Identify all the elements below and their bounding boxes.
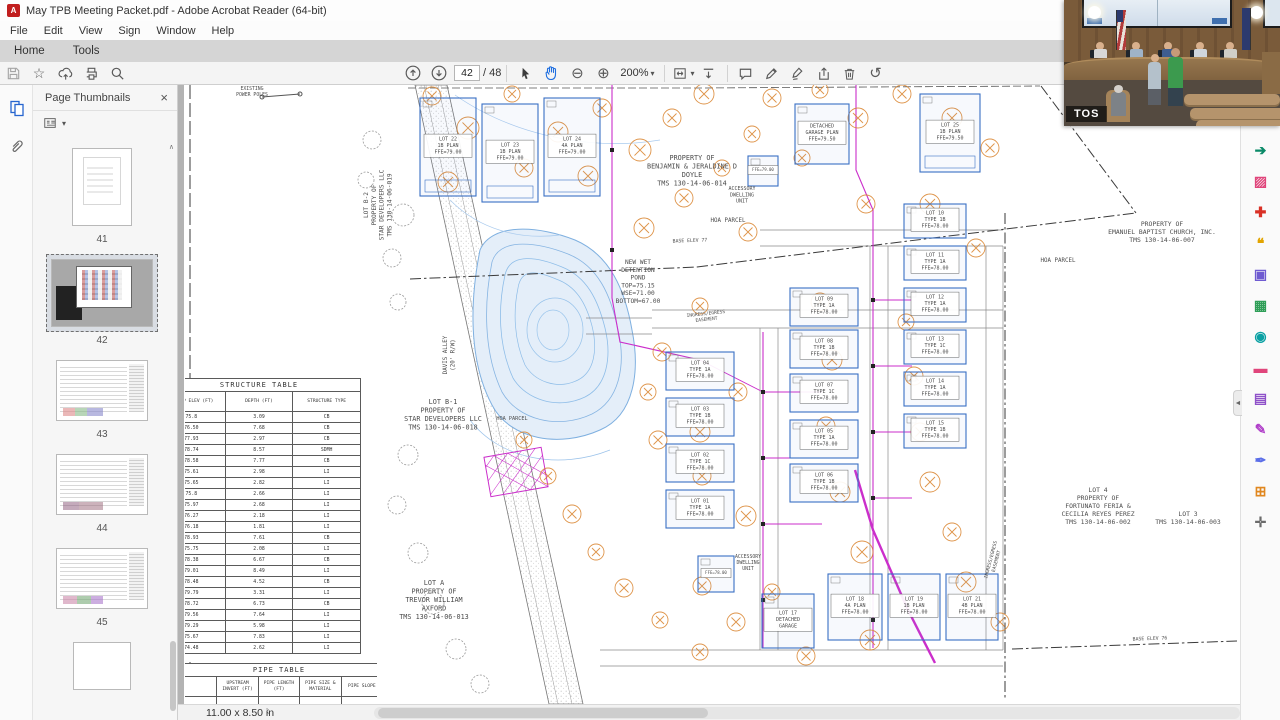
lot-building: LOT 191B PLANFFE=78.00 [888,574,940,640]
lot-label: 1B PLAN [437,143,458,149]
plan-label: LOT APROPERTY OFTREVOR WILLIAMAXFORDTMS … [399,579,469,621]
edit-pdf-icon[interactable]: ▨ [1250,168,1272,195]
chevron-down-icon: ▾ [651,69,655,78]
lot-label: FFE=78.00 [686,419,713,425]
plan-label: DAVIS ALLEY(20' R/W) [443,335,456,374]
page-thumbnails-icon [8,99,26,117]
lot-building: LOT 05TYPE 1AFFE=78.00 [790,420,858,458]
lot-label: FFE=78.00 [921,307,948,313]
lot-label: LOT 19 [905,597,923,603]
lot-label: TYPE 1B [924,427,945,433]
pdf-page-canvas[interactable]: LOT 221B PLANFFE=79.00LOT 231B PLANFFE=7… [184,85,1240,704]
scrollbar-thumb[interactable] [378,708,708,718]
zoom-level-value: 200% [620,67,648,79]
lot-label: FFE=78.00 [921,265,948,271]
lot-label: 1B PLAN [499,149,520,155]
thumbnail-list: 4142434445 [33,137,171,720]
lot-label: LOT 14 [926,379,944,385]
audience-member [1111,92,1126,116]
lot-label: LOT 12 [926,295,944,301]
lot-label: 4A PLAN [844,603,865,609]
projection-screen-right [1263,0,1280,28]
lot-label: LOT 06 [815,473,833,479]
compress-pdf-icon[interactable]: ◉ [1250,323,1272,350]
bench-row [1196,120,1280,126]
lot-label: FFE=78.00 [810,351,837,357]
lot-building: LOT 07TYPE 1CFFE=78.00 [790,374,858,412]
page-size-label: 11.00 x 8.50 in [206,707,274,719]
lot-label: FFE=78.00 [921,223,948,229]
bench-row [1190,108,1280,119]
tools-panel: ➔▨✚❝▣▦◉▬▤✎✒⊞✛ [1240,85,1280,720]
navigation-rail [0,85,33,720]
lot-building: LOT 11TYPE 1AFFE=78.00 [904,246,966,280]
plan-label: INGRESS/EGRESSEASEMENT [686,309,726,325]
video-watermark: TOS [1066,106,1107,122]
thumbnail-page[interactable] [68,637,136,695]
protect-pdf-icon[interactable]: ▤ [1250,385,1272,412]
horizontal-scrollbar[interactable] [374,707,1240,719]
acrobat-app-icon: A [7,4,20,17]
lot-label: TYPE 1B [689,413,710,419]
comment-tool-button[interactable] [733,63,759,84]
select-tool-button[interactable] [512,63,538,84]
send-file-button[interactable] [811,63,837,84]
lot-label: TYPE 1A [924,301,945,307]
thumbnail-page-42[interactable]: 42 [46,254,158,346]
zoom-in-button[interactable]: ⊕ [590,63,616,84]
more-tools-icon[interactable]: ✛ [1250,509,1272,536]
panel-close-icon[interactable]: × [160,90,168,105]
share-arrow-icon [815,65,832,82]
lot-label: TYPE 1A [924,259,945,265]
thumbnail-image [56,360,148,421]
projection-screen [1082,0,1232,28]
lot-label: FFE=79.50 [808,136,835,142]
page-thumbnails-panel: Page Thumbnails × ▾ 4142434445 ∧ [33,85,178,720]
organize-pages-icon[interactable]: ▦ [1250,292,1272,319]
lot-label: FFE=78.00 [810,395,837,401]
lot-building: LOT 12TYPE 1AFFE=78.00 [904,288,966,322]
combine-files-icon[interactable]: ▣ [1250,261,1272,288]
lot-label: 4A PLAN [561,143,582,149]
lot-building: LOT 10TYPE 1BFFE=78.00 [904,204,966,238]
lot-label: FFE=79.00 [752,167,774,172]
lot-label: FFE=78.00 [686,465,713,471]
lot-label: 4B PLAN [961,603,982,609]
lot-label: LOT 22 [439,137,457,143]
lot-label: TYPE 1A [689,505,710,511]
lot-building: DETACHEDGARAGE PLANFFE=79.50 [795,104,849,164]
lot-building: LOT 244A PLANFFE=79.00 [544,98,600,196]
lot-building: LOT 04TYPE 1AFFE=78.00 [666,352,734,390]
lot-label: FFE=78.00 [810,485,837,491]
lot-label: TYPE 1B [813,345,834,351]
plan-label: LOT B-2PROPERTY OFSTAR DEVELOPERS LLCTMS… [363,169,393,240]
lot-building: LOT 221B PLANFFE=79.00 [420,98,476,196]
lot-label: FFE=78.00 [810,309,837,315]
lot-label: FFE=78.00 [921,391,948,397]
zoom-out-button[interactable]: ⊖ [564,63,590,84]
hand-icon [542,64,560,82]
pen-nib-icon [789,65,806,82]
lot-label: FFE=78.00 [705,570,727,575]
lot-label: FFE=78.00 [921,349,948,355]
plan-label: HOA PARCEL [496,416,527,422]
page-down-icon [430,64,448,82]
thumbnail-options-button[interactable]: ▾ [33,111,177,135]
print-icon [83,65,100,82]
previous-page-button[interactable] [400,63,426,84]
thumbnail-number: 43 [96,429,107,440]
next-page-button[interactable] [426,63,452,84]
lot-label: FFE=78.00 [958,609,985,615]
plan-label: LOT B-1PROPERTY OFSTAR DEVELOPERS LLCTMS… [404,398,482,432]
lot-label: LOT 13 [926,337,944,343]
lot-label: TYPE 1C [813,389,834,395]
chevron-down-icon: ▾ [62,119,66,128]
thumbnail-image [51,259,153,327]
plan-label: ACCESSORYDWELLINGUNIT [735,554,761,572]
pencil-tool-button[interactable] [759,63,785,84]
lot-label: TYPE 1A [924,385,945,391]
plan-label: LOT 4PROPERTY OFFORTUNATO FERIA &CECILIA… [1061,486,1134,526]
lot-label: TYPE 1A [813,303,834,309]
panel-collapse-button[interactable]: ◄ [1233,390,1242,416]
chevron-down-icon: ▾ [691,69,695,78]
lot-label: TYPE 1B [813,479,834,485]
thumbnail-image [73,642,131,690]
save-button[interactable] [0,63,26,84]
sign-tool-button[interactable] [785,63,811,84]
lot-building: LOT 231B PLANFFE=79.00 [482,104,538,202]
lot-building: FFE=79.00 [748,156,778,186]
pencil-icon [763,65,780,82]
cloud-upload-icon [56,65,74,82]
lot-building: FFE=78.00 [698,556,734,592]
lot-label: GARAGE [779,623,797,629]
lot-label: LOT 23 [501,143,519,149]
scrollbar-thumb[interactable] [170,641,176,711]
side-panel-wood [1262,52,1280,94]
thumbnail-image [72,148,132,226]
lot-label: TYPE 1A [689,367,710,373]
lot-building: LOT 13TYPE 1CFFE=78.00 [904,330,966,364]
paperclip-icon [8,138,25,155]
menu-window[interactable]: Window [148,23,203,39]
lot-building: LOT 251B PLANFFE=79.50 [920,94,980,172]
page-count-label: / 48 [483,67,501,79]
acrobat-window: A May TPB Meeting Packet.pdf - Adobe Acr… [0,0,1280,720]
thumbnail-number: 45 [96,617,107,628]
tab-home-label: Home [14,45,45,57]
lot-label: LOT 08 [815,339,833,345]
hand-tool-button[interactable] [538,63,564,84]
menu-help[interactable]: Help [204,23,243,39]
lot-label: LOT 02 [691,453,709,459]
panel-title: Page Thumbnails [45,92,130,104]
lot-label: FFE=78.00 [900,609,927,615]
lot-label: TYPE 1A [813,435,834,441]
lot-building: LOT 17DETACHEDGARAGE [762,594,814,648]
document-viewport[interactable]: LOT 221B PLANFFE=79.00LOT 231B PLANFFE=7… [178,85,1240,720]
lot-label: LOT 05 [815,429,833,435]
lot-label: FFE=79.00 [558,149,585,155]
lot-building: LOT 01TYPE 1AFFE=78.00 [666,490,734,528]
scroll-left-icon[interactable]: ‹ [266,706,269,717]
thumbnail-image [56,548,148,609]
lot-building: LOT 02TYPE 1CFFE=78.00 [666,444,734,482]
speaker [1148,62,1161,89]
lot-label: LOT 11 [926,253,944,259]
adobe-sign-icon[interactable]: ✒ [1250,447,1272,474]
lot-building: LOT 08TYPE 1BFFE=78.00 [790,330,858,368]
menu-file[interactable]: File [2,23,36,39]
create-pdf-icon[interactable]: ✚ [1250,199,1272,226]
lot-label: FFE=78.00 [810,441,837,447]
lot-building: LOT 15TYPE 1BFFE=78.00 [904,414,966,448]
lot-building: LOT 14TYPE 1AFFE=78.00 [904,372,966,406]
search-icon [109,65,126,82]
plan-label: ACCESSORYDWELLINGUNIT [728,186,755,205]
save-icon [5,65,22,82]
rotate-icon: ↺ [869,64,882,82]
lot-building: LOT 184A PLANFFE=78.00 [828,574,882,640]
fit-width-icon [671,65,689,82]
lot-label: DETACHED [776,617,800,623]
thumbnail-image [56,454,148,515]
document-status-bar: 11.00 x 8.50 in ‹ [178,704,1240,720]
lot-label: LOT 21 [963,597,981,603]
window-title: May TPB Meeting Packet.pdf - Adobe Acrob… [26,5,327,17]
menu-edit[interactable]: Edit [36,23,71,39]
lot-label: TYPE 1B [924,217,945,223]
lot-label: FFE=78.00 [686,373,713,379]
trash-icon [841,65,858,82]
plan-label: PROPERTY OFBENJAMIN & JERALDINE DDOYLETM… [647,154,737,188]
star-icon: ☆ [33,65,46,82]
structure-table: STRUCTURE TABLEST TOP ELEV (FT)DEPTH (FT… [185,378,361,662]
us-flag [1116,10,1126,50]
comment-bubble-icon [737,65,754,82]
options-icon [43,116,57,130]
page-fit-icon [700,65,717,82]
page-thumbnails-rail-button[interactable] [0,93,33,123]
lot-label: LOT 03 [691,407,709,413]
thumbnail-page-45[interactable]: 45 [51,543,153,628]
plan-label: HOA PARCEL [1041,258,1076,264]
tab-tools[interactable]: Tools [59,40,114,62]
lot-building: LOT 06TYPE 1BFFE=78.00 [790,464,858,502]
lot-label: LOT 04 [691,361,709,367]
lot-label: LOT 09 [815,297,833,303]
ceiling-light [1250,6,1263,19]
fit-page-button[interactable]: ▾ [670,63,696,84]
attachments-rail-button[interactable] [0,131,33,161]
lot-label: LOT 15 [926,421,944,427]
lot-label: FFE=79.50 [936,135,963,141]
redact-icon[interactable]: ▬ [1250,354,1272,381]
lot-label: LOT 18 [846,597,864,603]
plan-label: NEW WETDETENTIONPONDTOP=75.15WSE=71.00BO… [616,259,661,305]
tab-tools-label: Tools [73,45,100,57]
plan-label: LOT 3TMS 130-14-06-003 [1155,510,1221,526]
lot-label: FFE=79.00 [434,149,461,155]
scrolling-mode-button[interactable] [696,63,722,84]
zoom-level-select[interactable]: 200% ▾ [616,67,658,79]
plan-label: EXISTINGPOWER POLES [236,86,268,98]
ceiling-light [1088,6,1101,19]
thumbnail-page-43[interactable]: 43 [51,355,153,440]
thumbnail-page-41[interactable]: 41 [67,143,137,245]
meeting-video-overlay: TOS [1064,0,1280,126]
page-number-input[interactable] [454,65,480,81]
plan-label: BASE ELEV 77 [673,237,708,244]
state-flag [1242,8,1251,50]
plan-label: BASE ELEV 76 [1133,635,1168,642]
print-button[interactable] [78,63,104,84]
plan-label: HOA PARCEL [711,218,746,224]
tab-home[interactable]: Home [0,40,59,62]
thumbnail-number: 44 [96,523,107,534]
search-button[interactable] [104,63,130,84]
comment-icon[interactable]: ❝ [1250,230,1272,257]
lot-label: FFE=78.00 [686,511,713,517]
lot-label: TYPE 1C [689,459,710,465]
lot-label: LOT 10 [926,211,944,217]
lot-label: FFE=78.00 [921,433,948,439]
rotate-page-button[interactable]: ↺ [863,63,889,84]
lot-label: DETACHED [810,124,834,130]
plan-label: PROPERTY OFEMANUEL BAPTIST CHURCH, INC.T… [1108,220,1216,244]
lot-label: 1B PLAN [939,129,960,135]
lot-building: LOT 03TYPE 1BFFE=78.00 [666,398,734,436]
thumbnail-number: 42 [96,335,107,346]
thumbnail-number: 41 [96,234,107,245]
lot-label: LOT 17 [779,611,797,617]
lot-label: FFE=78.00 [841,609,868,615]
thumbnail-scrollbar[interactable] [170,141,176,716]
cursor-icon [517,65,534,82]
thumbnail-page-44[interactable]: 44 [51,449,153,534]
lot-label: GARAGE PLAN [805,130,838,136]
lot-label: LOT 01 [691,499,709,505]
menu-sign[interactable]: Sign [110,23,148,39]
lot-label: LOT 24 [563,137,581,143]
lot-label: LOT 25 [941,123,959,129]
page-up-icon [404,64,422,82]
lot-label: LOT 07 [815,383,833,389]
pipe-table: PIPE TABLEUPSTREAM INVERT (FT)PIPE LENGT… [185,663,377,704]
favorites-button[interactable]: ☆ [26,63,52,84]
lot-building: LOT 214B PLANFFE=78.00 [946,574,998,640]
fill-sign-icon[interactable]: ✎ [1250,416,1272,443]
lot-building: LOT 09TYPE 1AFFE=78.00 [790,288,858,326]
lot-label: TYPE 1C [924,343,945,349]
speaker-green-shirt [1168,57,1183,88]
bench-row [1184,94,1280,105]
zoom-in-icon: ⊕ [597,64,610,82]
share-cloud-button[interactable] [52,63,78,84]
menu-view[interactable]: View [71,23,111,39]
lot-label: 1B PLAN [903,603,924,609]
lot-label: FFE=79.00 [496,155,523,161]
export-pdf-icon[interactable]: ➔ [1250,137,1272,164]
zoom-out-icon: ⊖ [571,64,584,82]
stamp-icon[interactable]: ⊞ [1250,478,1272,505]
delete-pages-button[interactable] [837,63,863,84]
